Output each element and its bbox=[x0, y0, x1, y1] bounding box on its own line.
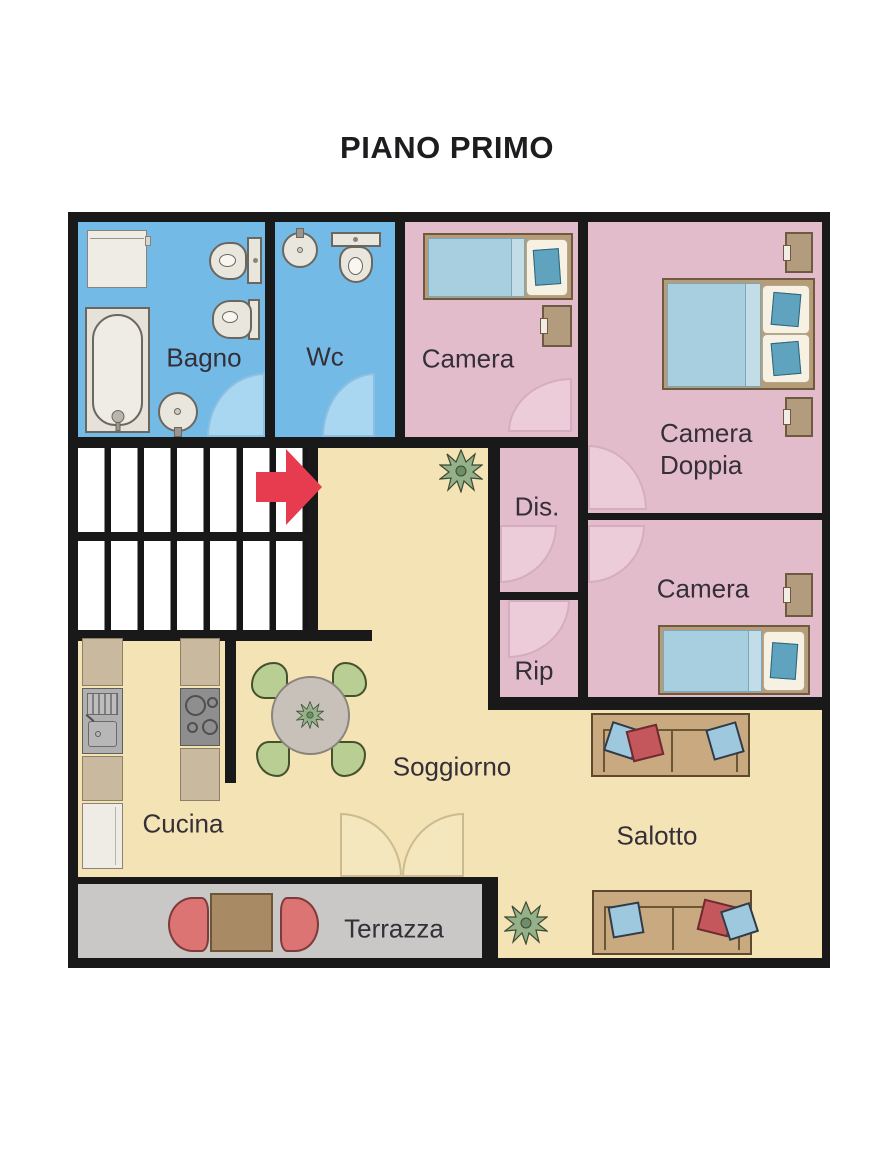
plant-icon bbox=[504, 901, 548, 945]
nightstand-icon bbox=[785, 573, 813, 617]
wall bbox=[395, 222, 405, 437]
washing-machine-icon bbox=[87, 230, 147, 288]
fridge-icon bbox=[82, 803, 123, 869]
sofa-icon bbox=[591, 713, 750, 777]
single-bed-icon bbox=[423, 233, 573, 300]
table-plant-icon bbox=[296, 701, 324, 729]
room-label-camera-doppia: Camera Doppia bbox=[660, 417, 752, 481]
wall bbox=[225, 641, 236, 783]
room-label-wc: Wc bbox=[306, 342, 344, 373]
room-label-salotto: Salotto bbox=[617, 821, 698, 852]
kitchen-cabinet-icon bbox=[82, 638, 123, 686]
wall bbox=[488, 697, 822, 710]
room-label-dis: Dis. bbox=[515, 492, 560, 523]
nightstand-icon bbox=[542, 305, 572, 347]
room-label-rip: Rip bbox=[514, 656, 553, 687]
kitchen-cabinet-icon bbox=[82, 756, 123, 801]
terrace-chair-icon bbox=[168, 897, 209, 952]
wall bbox=[500, 592, 578, 600]
floor-plan: Bagno Wc Camera Camera Doppia bbox=[68, 212, 830, 968]
room-label-camera-top: Camera bbox=[422, 344, 514, 375]
wall bbox=[78, 437, 588, 448]
kitchen-sink-icon bbox=[82, 688, 123, 754]
sink-icon bbox=[282, 228, 318, 268]
bidet-icon bbox=[210, 298, 262, 342]
nightstand-icon bbox=[785, 232, 813, 273]
wall bbox=[578, 222, 588, 710]
nightstand-icon bbox=[785, 397, 813, 437]
stove-icon bbox=[180, 688, 220, 746]
sofa-icon bbox=[592, 890, 752, 955]
toilet-icon bbox=[330, 232, 382, 285]
bathtub-icon bbox=[85, 307, 150, 433]
room-label-camera-right: Camera bbox=[657, 574, 749, 605]
stairs-lower-flight bbox=[78, 541, 308, 630]
sink-icon bbox=[158, 392, 198, 437]
wall bbox=[578, 513, 822, 520]
toilet-icon bbox=[207, 235, 262, 287]
stairs-direction-arrow-icon bbox=[256, 449, 322, 525]
room-label-cucina: Cucina bbox=[143, 809, 224, 840]
double-bed-icon bbox=[662, 278, 815, 390]
wall bbox=[265, 222, 275, 437]
stairs-landing-divider bbox=[78, 532, 308, 541]
room-label-terrazza: Terrazza bbox=[344, 914, 444, 945]
room-label-bagno: Bagno bbox=[166, 343, 241, 374]
kitchen-cabinet-icon bbox=[180, 748, 220, 801]
wall bbox=[488, 437, 500, 710]
page-title: PIANO PRIMO bbox=[0, 130, 894, 166]
room-label-soggiorno: Soggiorno bbox=[393, 752, 512, 783]
terrace-table-icon bbox=[210, 893, 273, 952]
single-bed-icon bbox=[658, 625, 810, 695]
plant-icon bbox=[439, 449, 483, 493]
kitchen-cabinet-icon bbox=[180, 638, 220, 686]
